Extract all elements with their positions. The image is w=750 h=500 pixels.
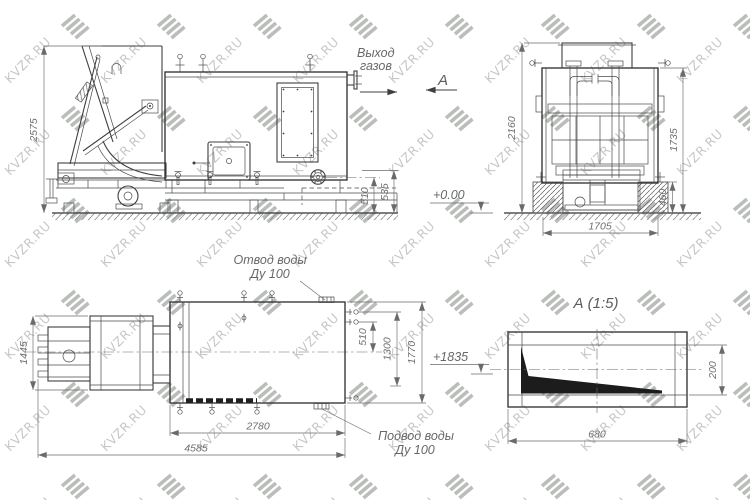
svg-text:+0.00: +0.00 [433, 188, 465, 202]
svg-text:1445: 1445 [18, 341, 30, 365]
svg-text:2575: 2575 [28, 118, 40, 143]
svg-text:460: 460 [657, 189, 669, 207]
water-outlet-label-line2: Ду 100 [248, 267, 290, 281]
svg-text:1735: 1735 [668, 128, 680, 152]
svg-text:1705: 1705 [588, 221, 612, 233]
svg-text:1300: 1300 [382, 337, 394, 361]
svg-text:4585: 4585 [184, 443, 208, 455]
svg-text:200: 200 [707, 361, 719, 380]
water-inlet-label-line1: Подвод воды [378, 429, 454, 443]
gas-outlet-label-line2: газов [360, 59, 392, 73]
technical-drawing-canvas: KVZR.RU [0, 0, 750, 500]
water-outlet-label-line1: Отвод воды [233, 253, 306, 267]
svg-text:2780: 2780 [245, 421, 270, 433]
svg-text:510: 510 [357, 328, 369, 346]
svg-text:535: 535 [379, 183, 391, 201]
svg-text:2160: 2160 [506, 116, 518, 141]
foundation-block-left [533, 182, 563, 213]
watermark-layer [0, 0, 750, 500]
svg-text:+1835: +1835 [433, 350, 468, 364]
detail-title: А (1:5) [572, 295, 618, 312]
ground-hatch-end [504, 214, 701, 221]
gas-outlet-label-line1: Выход [357, 46, 395, 60]
section-arrow-label: А [437, 72, 448, 89]
svg-text:1770: 1770 [406, 341, 418, 365]
svg-text:680: 680 [588, 429, 606, 441]
water-inlet-label-line2: Ду 100 [393, 443, 435, 457]
ground-hatch [52, 214, 398, 221]
svg-text:510: 510 [359, 187, 371, 205]
